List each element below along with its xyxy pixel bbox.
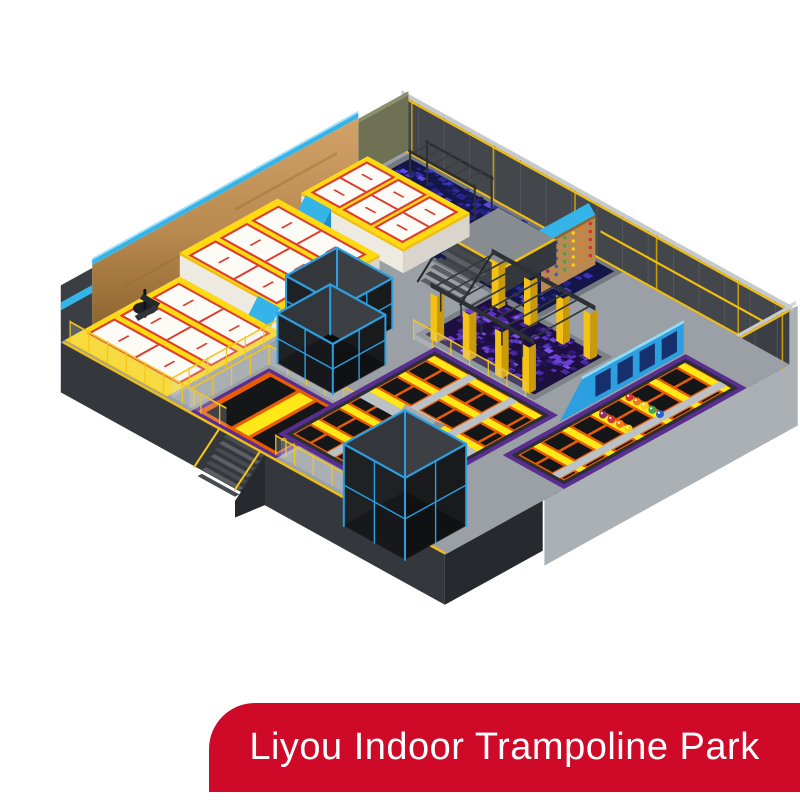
trampoline-park-product-image: Liyou Indoor Trampoline Park (0, 0, 800, 800)
caption-text: Liyou Indoor Trampoline Park (249, 726, 759, 769)
park-3d-render (0, 0, 800, 800)
caption-banner: Liyou Indoor Trampoline Park (209, 703, 800, 792)
